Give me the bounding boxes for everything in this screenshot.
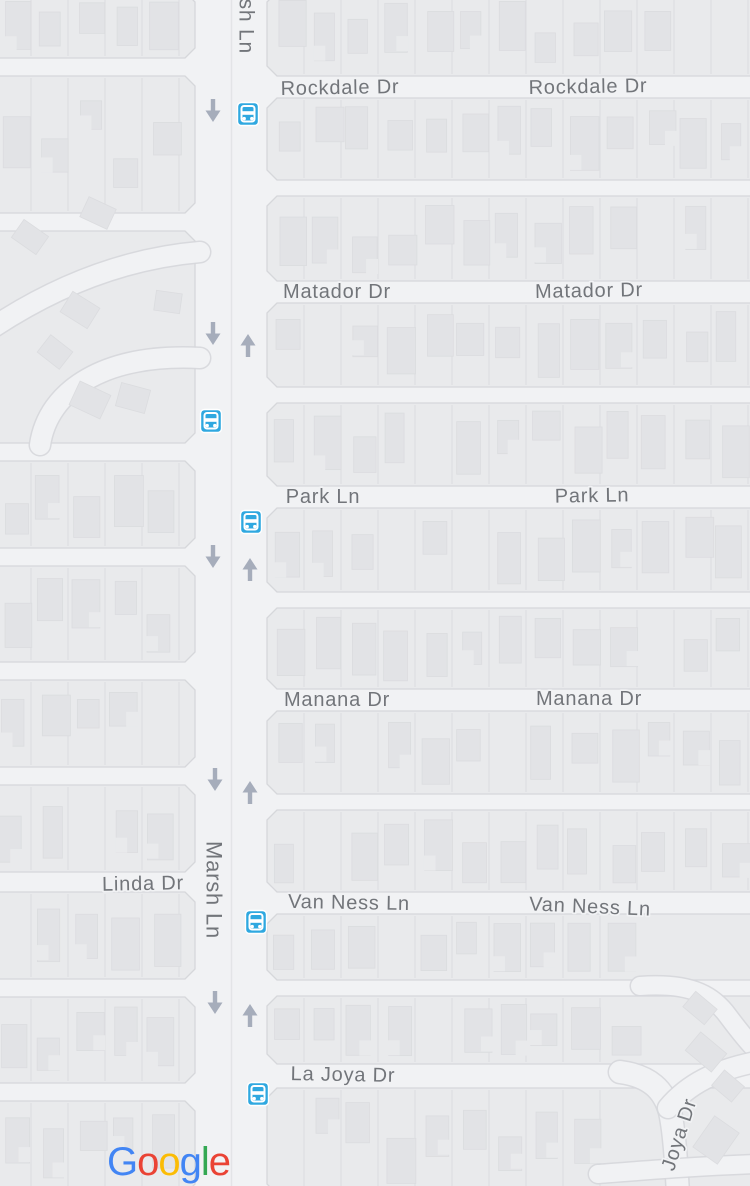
google-logo-letter: l: [201, 1140, 209, 1185]
google-logo-letter: g: [180, 1140, 201, 1185]
bus-stop-icon[interactable]: [241, 511, 262, 534]
street-label: Marsh Ln: [235, 0, 258, 54]
bus-stop-icon[interactable]: [246, 911, 267, 934]
google-logo[interactable]: Google: [107, 1140, 230, 1185]
street-label: Matador Dr: [535, 279, 643, 303]
street-label: Matador Dr: [283, 281, 391, 303]
street-label: Rockdale Dr: [528, 75, 647, 99]
street-label: Marsh Ln: [202, 841, 227, 939]
street-label: Linda Dr: [102, 872, 184, 895]
map-viewport[interactable]: Rockdale DrRockdale DrMatador DrMatador …: [0, 0, 750, 1186]
google-logo-letter: o: [158, 1140, 179, 1185]
street-label: Park Ln: [555, 484, 630, 507]
street-label: Manana Dr: [284, 689, 390, 711]
bus-stop-icon[interactable]: [248, 1083, 269, 1106]
google-logo-letter: o: [137, 1140, 158, 1185]
street-label: Manana Dr: [536, 688, 642, 710]
street-label: La Joya Dr: [290, 1063, 395, 1087]
map-canvas: Rockdale DrRockdale DrMatador DrMatador …: [0, 0, 750, 1186]
bus-stop-icon[interactable]: [201, 410, 222, 433]
street-label: Rockdale Dr: [280, 76, 399, 100]
street-label: Van Ness Ln: [288, 891, 410, 915]
google-logo-letter: e: [209, 1140, 230, 1185]
street-label: Park Ln: [286, 486, 361, 508]
google-logo-letter: G: [107, 1140, 137, 1185]
bus-stop-icon[interactable]: [238, 103, 259, 126]
